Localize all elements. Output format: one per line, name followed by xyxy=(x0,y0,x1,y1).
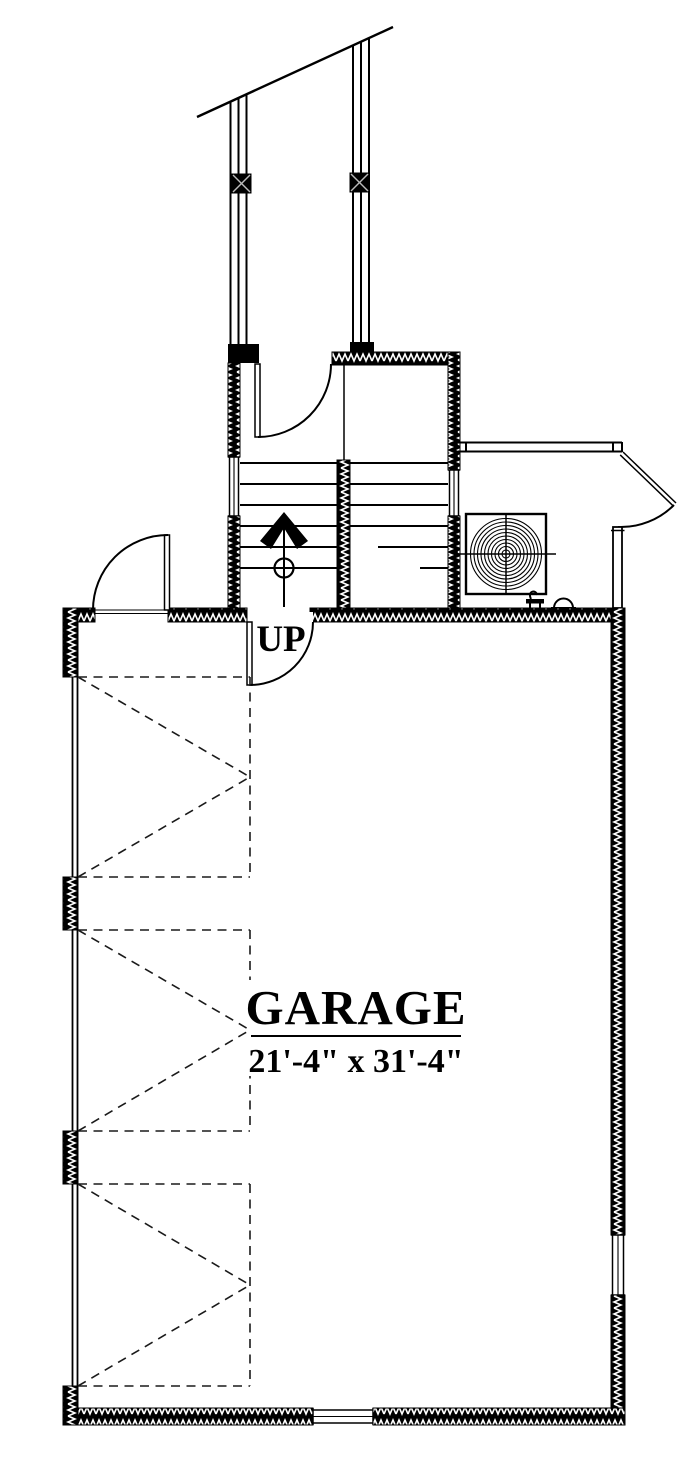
driveway-edge-line xyxy=(197,27,393,117)
garage-left-pier xyxy=(63,608,78,677)
column-post-icon xyxy=(350,173,369,192)
porch-railing xyxy=(458,442,622,452)
garage-top-wall xyxy=(168,608,247,622)
stair-hall-left-wall xyxy=(228,363,240,457)
service-door xyxy=(93,535,170,614)
garage-door-panels xyxy=(73,677,78,1386)
site-column-left xyxy=(228,94,259,363)
hall-entry-door xyxy=(255,364,331,437)
water-heater-icon xyxy=(456,514,556,594)
garage-left-pier xyxy=(63,1131,78,1184)
floor-plan-drawing: UP GARAGE xyxy=(0,0,696,1476)
stair-hall-right-wall-lower xyxy=(448,516,460,608)
garage-door-bay-2 xyxy=(78,930,250,1131)
garage-door-bay-3 xyxy=(78,1184,250,1386)
stair-right-window xyxy=(448,470,460,516)
room-dimensions-label: 21'-4" x 31'-4" xyxy=(248,1043,463,1080)
door-swing-arc xyxy=(618,505,674,527)
up-door: UP xyxy=(247,612,313,685)
stair-hall-top-wall xyxy=(332,352,460,365)
garage-window-right xyxy=(611,1235,625,1295)
door-swing-arc xyxy=(258,364,331,437)
stair-hall xyxy=(228,352,460,608)
site-column-right xyxy=(350,38,374,355)
up-label: UP xyxy=(256,619,305,660)
garage-right-wall-lower xyxy=(611,1295,625,1408)
column-footing xyxy=(228,344,259,363)
garage-bottom-wall xyxy=(373,1408,625,1425)
stair-hall-left-wall-lower xyxy=(228,516,240,608)
garage-window-bottom xyxy=(313,1408,373,1425)
room-name-label: GARAGE xyxy=(245,980,466,1035)
garage: UP GARAGE xyxy=(63,535,625,1425)
mechanical-area xyxy=(456,514,576,608)
garage-left-pier xyxy=(63,1386,78,1425)
column-post-icon xyxy=(232,174,251,193)
garage-bottom-wall xyxy=(63,1408,313,1425)
floor-plan-page: UP GARAGE xyxy=(0,0,696,1476)
porch-door xyxy=(618,452,676,527)
garage-room-label-group: GARAGE 21'-4" x 31'-4" xyxy=(245,980,466,1080)
garage-door-bay-1 xyxy=(78,677,250,877)
stair-center-wall xyxy=(337,460,350,608)
door-swing-arc xyxy=(93,535,168,610)
porch-side-wall xyxy=(611,527,625,608)
stair-left-window xyxy=(228,457,240,516)
garage-right-wall xyxy=(611,608,625,1235)
garage-left-pier xyxy=(63,877,78,930)
garage-top-wall xyxy=(310,608,613,622)
pipe-cap-icon xyxy=(551,599,576,609)
